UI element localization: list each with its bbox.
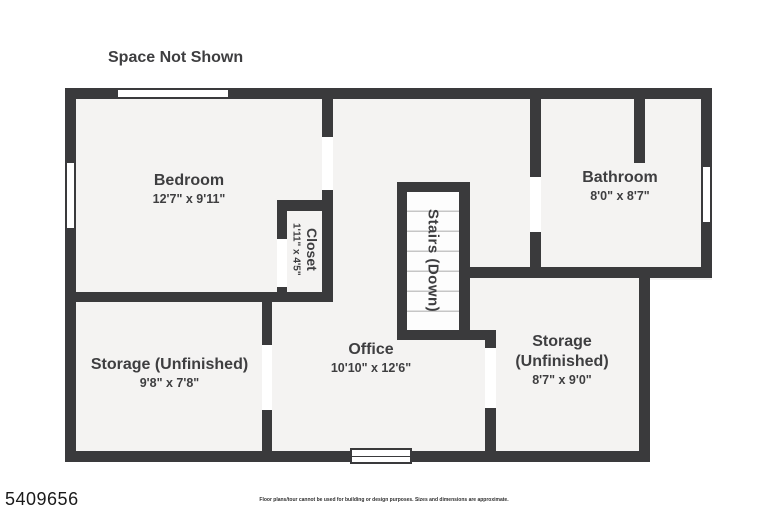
wall-storage-office-lower: [262, 410, 272, 462]
wall-stairs-bottom: [397, 330, 496, 340]
wall-bathroom-stub: [634, 99, 645, 163]
storage-right-label: Storage (Unfinished) 8'7" x 9'0": [505, 332, 619, 389]
bedroom-name: Bedroom: [94, 171, 284, 191]
office-label: Office 10'10" x 12'6": [296, 340, 446, 377]
closet-dims: 1'11" x 4'5": [288, 223, 302, 276]
office-bottom-window: [350, 448, 412, 464]
wall-right-lower: [639, 267, 650, 462]
floor-plan: Space Not Shown Bedroom 12'7" x 9'11" Ba…: [0, 0, 768, 512]
storage-right-name: Storage (Unfinished): [505, 332, 619, 372]
stairs-name: Stairs (Down): [425, 209, 442, 312]
wall-office-right-lower: [485, 408, 496, 462]
storage-right-door-opening: [485, 348, 496, 408]
closet-name: Closet: [302, 223, 320, 276]
closet-label: Closet 1'11" x 4'5": [285, 205, 323, 293]
wall-stairs-left: [397, 182, 407, 340]
wall-hall-storage-divider: [459, 267, 712, 278]
office-name: Office: [296, 340, 446, 360]
stairs-label: Stairs (Down): [407, 192, 459, 330]
wall-storage-office-upper: [262, 302, 272, 345]
bedroom-door-opening: [322, 137, 333, 190]
bathroom-right-window: [701, 167, 712, 222]
wall-stairs-right: [459, 182, 470, 340]
space-not-shown-label: Space Not Shown: [108, 49, 243, 67]
office-dims: 10'10" x 12'6": [296, 360, 446, 377]
bathroom-dims: 8'0" x 8'7": [545, 188, 695, 205]
bedroom-label: Bedroom 12'7" x 9'11": [94, 171, 284, 208]
bedroom-left-window: [65, 163, 76, 228]
wall-bedroom-bottom: [65, 292, 333, 302]
wall-bedroom-right-upper: [322, 99, 333, 137]
storage-left-label: Storage (Unfinished) 9'8" x 7'8": [72, 355, 267, 392]
bedroom-top-window: [118, 88, 228, 99]
wall-left: [65, 88, 76, 462]
disclaimer-text: Floor plans/tour cannot be used for buil…: [0, 497, 768, 503]
storage-right-dims: 8'7" x 9'0": [505, 372, 619, 389]
bedroom-dims: 12'7" x 9'11": [94, 191, 284, 208]
bathroom-name: Bathroom: [545, 168, 695, 188]
wall-bathroom-left-upper: [530, 99, 541, 177]
bathroom-door-opening: [530, 177, 541, 232]
wall-office-right-upper: [485, 330, 496, 348]
storage-left-dims: 9'8" x 7'8": [72, 375, 267, 392]
bathroom-label: Bathroom 8'0" x 8'7": [545, 168, 695, 205]
storage-left-name: Storage (Unfinished): [72, 355, 267, 375]
wall-bathroom-left-lower: [530, 232, 541, 267]
